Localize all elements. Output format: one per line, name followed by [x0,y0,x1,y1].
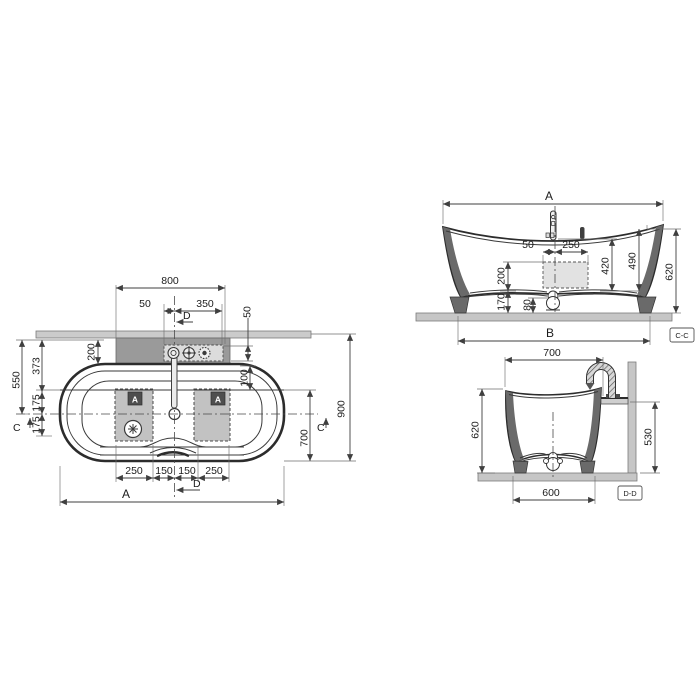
section-tag-dd-label: D-D [623,489,637,498]
dim-label-600-dd: 600 [542,487,560,499]
dim-label-900: 900 [336,400,348,418]
dim-label-800: 800 [161,275,179,287]
dim-label-a-cc: A [545,189,553,203]
faucet-nozzle-dd [586,383,595,390]
dim-label-700-plan: 700 [299,429,311,447]
dim-label-80-cc: 80 [522,299,534,311]
floor-band-dd [478,473,637,481]
dim-label-490-cc: 490 [627,252,639,270]
dim-label-50-cc: 50 [522,239,534,251]
dim-label-175-lower: 175 [31,416,43,434]
foot-right-cc [637,297,656,313]
deck-band [36,331,311,338]
floor-band-cc [416,313,672,321]
wall-band-dd [628,362,636,473]
dim-label-50-side: 50 [242,306,254,318]
pump-location-box [543,262,588,288]
foot-right-dd [580,461,595,473]
panel-badge-left-label: A [132,395,138,405]
dim-label-620-dd: 620 [470,421,482,439]
plan-view: A A [11,275,357,506]
dim-label-700-dd: 700 [543,347,561,359]
hand-control-cc [580,227,585,239]
dim-label-250-cc: 250 [562,239,580,251]
bathtub-drawing: A A [0,0,700,700]
dim-label-550: 550 [11,371,23,389]
foot-left-cc [450,297,469,313]
technical-drawing-canvas: A A [0,0,700,700]
dim-label-200: 200 [86,343,98,361]
dim-label-a-plan: A [122,487,130,501]
section-dd-view: 700 620 530 600 D-D [470,347,661,504]
dim-label-250-right: 250 [205,465,223,477]
section-c-label-left: C [13,422,21,434]
dim-label-150-left: 150 [155,465,173,477]
dim-label-150-right: 150 [178,465,196,477]
dim-label-620-cc: 620 [664,263,676,281]
section-d-label-top: D [183,310,191,322]
section-d-label-bottom: D [193,478,201,490]
section-cc-view: A 50 250 200 170 80 420 490 620 B C-C [416,189,694,345]
dim-label-530-dd: 530 [643,428,655,446]
dim-label-b-cc: B [546,326,554,340]
section-tag-cc-label: C-C [675,331,689,340]
pump-icon [125,421,142,438]
section-tag-dd: D-D [618,486,642,500]
section-c-label-right: C [317,422,325,434]
dim-label-200-cc: 200 [496,267,508,285]
dim-label-50-top: 50 [139,298,151,310]
dim-label-175-upper: 175 [31,394,43,412]
dim-label-170-cc: 170 [496,293,508,311]
dim-label-420-cc: 420 [600,257,612,275]
dim-label-100: 100 [239,369,251,387]
dim-label-373: 373 [31,357,43,375]
dim-label-350: 350 [196,298,214,310]
drain-trap-cc [546,291,560,310]
panel-badge-right-label: A [215,395,221,405]
faucet-fitting-3 [199,348,210,359]
section-tag-cc: C-C [670,328,694,342]
foot-left-dd [513,461,528,473]
dim-label-250-left: 250 [125,465,143,477]
